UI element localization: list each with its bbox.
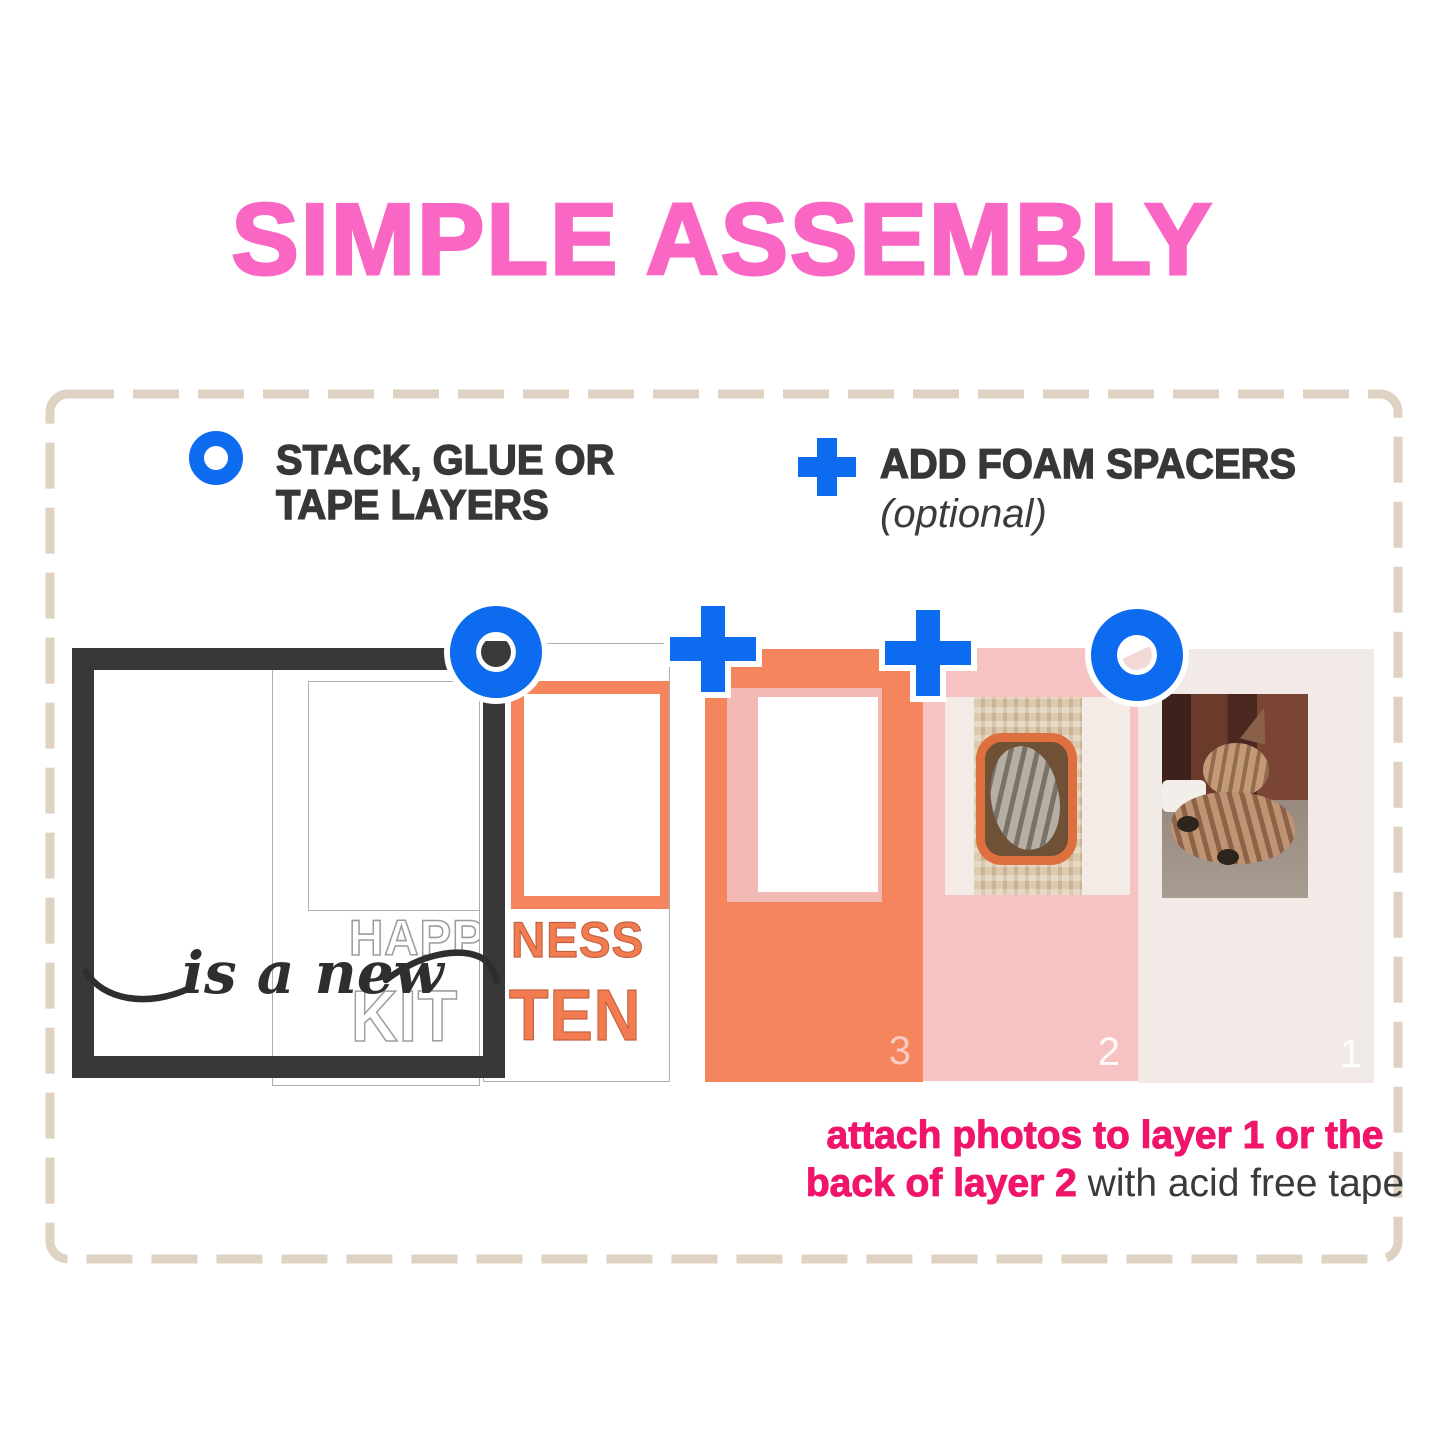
kitten-basket bbox=[976, 733, 1077, 865]
foam-spacers-label: ADD FOAM SPACERS bbox=[880, 441, 1296, 486]
script-overlay: is a new bbox=[78, 930, 518, 1060]
layer-number: 2 bbox=[1098, 1030, 1120, 1075]
layer-3-card: 3 bbox=[705, 649, 923, 1082]
caption-line-2: back of layer 2 with acid free tape bbox=[790, 1160, 1420, 1208]
foam-spacer-band bbox=[727, 688, 882, 902]
assembly-instructions-graphic: SIMPLE ASSEMBLY STACK, GLUE OR TAPE LAYE… bbox=[0, 0, 1445, 1445]
photo-window bbox=[758, 697, 878, 892]
photo-attachment-caption: attach photos to layer 1 or the back of … bbox=[790, 1112, 1420, 1208]
plus-icon bbox=[657, 593, 769, 705]
word-kitten-fragment: TEN bbox=[509, 980, 641, 1052]
layer-1-card: 1 bbox=[1138, 649, 1374, 1083]
plus-icon bbox=[872, 597, 984, 709]
stack-glue-label: STACK, GLUE OR TAPE LAYERS bbox=[276, 437, 614, 527]
circle-ring-icon bbox=[1091, 609, 1183, 701]
basket-kitten-photo bbox=[974, 697, 1082, 895]
script-swash-lead bbox=[86, 972, 190, 999]
kitten-head bbox=[1203, 743, 1269, 797]
stack-glue-label-line1: STACK, GLUE OR bbox=[276, 437, 614, 482]
foam-spacers-note: (optional) bbox=[880, 492, 1047, 537]
script-text: is a new bbox=[182, 939, 446, 1007]
caption-line2-rest: with acid free tape bbox=[1077, 1162, 1404, 1205]
plus-icon bbox=[794, 434, 860, 500]
layer-2-card: 2 bbox=[923, 648, 1138, 1081]
layer-number: 3 bbox=[889, 1029, 911, 1074]
photo-window bbox=[945, 697, 1130, 895]
circle-ring-icon bbox=[450, 606, 542, 698]
layer-number: 1 bbox=[1340, 1032, 1362, 1077]
word-happiness-fragment: NESS bbox=[511, 915, 644, 965]
caption-line2-bold: back of layer 2 bbox=[806, 1162, 1077, 1205]
photo-window-frame bbox=[511, 681, 670, 909]
page-title: SIMPLE ASSEMBLY bbox=[0, 183, 1445, 298]
kitten-in-basket bbox=[981, 740, 1069, 856]
stack-glue-label-line2: TAPE LAYERS bbox=[276, 482, 614, 527]
circle-ring-icon bbox=[189, 431, 243, 485]
sleeping-kitten-photo bbox=[1162, 694, 1308, 898]
caption-line-1: attach photos to layer 1 or the bbox=[790, 1112, 1420, 1160]
kitten-paw bbox=[1177, 816, 1199, 832]
caption-line1-text: attach photos to layer 1 or the bbox=[827, 1114, 1384, 1157]
